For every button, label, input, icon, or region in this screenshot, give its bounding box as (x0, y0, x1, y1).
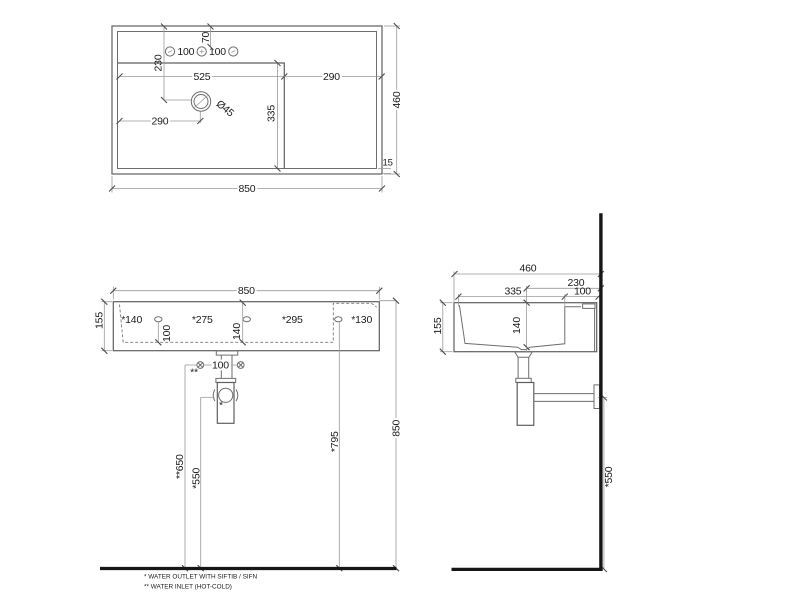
dim-rim-height: 850 (391, 419, 403, 436)
top-view-outer-outline (112, 26, 382, 174)
side-drain-funnel (515, 352, 533, 357)
dim-basin-depth-side: 335 (505, 285, 522, 297)
drawing-svg: 850 460 100 100 70 230 525 290 335 290 Ø… (0, 0, 800, 600)
dim-inner-height-side: 140 (511, 317, 523, 334)
side-trap-cap (516, 378, 531, 382)
dim-outlet-height-side: *550 (603, 466, 615, 487)
top-view-dimensions: 850 460 100 100 70 230 525 290 335 290 Ø… (112, 26, 403, 195)
dim-overall-width-front: 850 (238, 285, 255, 297)
side-fixing-hole (583, 304, 595, 309)
dim-hole-spacing-295: *295 (282, 314, 303, 326)
dim-inner-height-front: 140 (231, 323, 243, 340)
dim-deck-depth-side: 100 (574, 285, 591, 297)
fixing-hole-3 (335, 317, 342, 322)
side-view: 460 230 140 335 100 155 *550 (432, 213, 615, 571)
tap-holes (165, 47, 238, 56)
dim-hole-spacing-275: *275 (192, 314, 213, 326)
dim-hole-drop: 100 (161, 325, 173, 342)
trap-cap (216, 378, 236, 382)
dim-overall-width-top: 850 (239, 183, 256, 195)
dim-inlet-height: **650 (174, 454, 186, 479)
tap-hole-center-mark (200, 50, 204, 54)
dim-hole-height: *795 (329, 431, 341, 452)
side-trap-body (517, 383, 534, 426)
drain-flange (216, 351, 238, 355)
dim-front-edge: 15 (383, 158, 393, 169)
washbasin-technical-drawing: 850 460 100 100 70 230 525 290 335 290 Ø… (0, 0, 800, 600)
dim-outlet-height: *550 (190, 468, 202, 489)
dim-tap-offset: 70 (200, 32, 212, 44)
dim-tap-spacing-right: 100 (209, 46, 226, 58)
dim-basin-width: 525 (193, 71, 210, 83)
drain-slash-mark (195, 96, 208, 108)
dim-height-side: 155 (432, 317, 444, 334)
dim-drain-from-back: 230 (153, 54, 165, 71)
dim-drain-diameter: Ø45 (214, 98, 237, 120)
fixing-hole-1 (155, 317, 162, 322)
dim-height-front: 155 (93, 312, 105, 329)
dim-deck-width: 290 (323, 71, 340, 83)
top-view: 850 460 100 100 70 230 525 290 335 290 Ø… (112, 26, 403, 195)
side-trap-and-pipe (515, 352, 600, 425)
drain-hole (191, 92, 210, 111)
water-inlets: 100 ** (185, 360, 244, 379)
dim-tap-spacing-left: 100 (177, 46, 194, 58)
footnote-inlet: ** WATER INLET (HOT-COLD) (144, 584, 232, 591)
outlet-asterisk: * (219, 400, 223, 412)
dim-overall-depth-top: 460 (391, 91, 403, 108)
tap-hole-left-mark (168, 51, 172, 53)
tap-hole-right-mark (231, 51, 235, 53)
dim-inlet-spacing: 100 (212, 360, 229, 372)
dim-overall-depth-side: 460 (520, 263, 537, 275)
dim-basin-depth: 335 (266, 105, 278, 122)
footnotes: * WATER OUTLET WITH SIFTIB / SIFN ** WAT… (144, 574, 258, 591)
fixing-hole-2 (243, 317, 250, 322)
dim-hole-spacing-130: *130 (351, 314, 372, 326)
dim-drain-from-left: 290 (151, 116, 168, 128)
footnote-outlet: * WATER OUTLET WITH SIFTIB / SIFN (144, 574, 258, 581)
top-view-rim-outline (118, 32, 377, 169)
front-view-height-dimensions: **650 *550 *795 850 (174, 301, 402, 569)
dim-hole-spacing-140: *140 (121, 314, 142, 326)
wall-pipe-flange (594, 385, 600, 409)
front-view: *140 *275 *295 *130 100 140 * 100 (93, 285, 402, 568)
inlet-asterisks: ** (190, 367, 198, 379)
